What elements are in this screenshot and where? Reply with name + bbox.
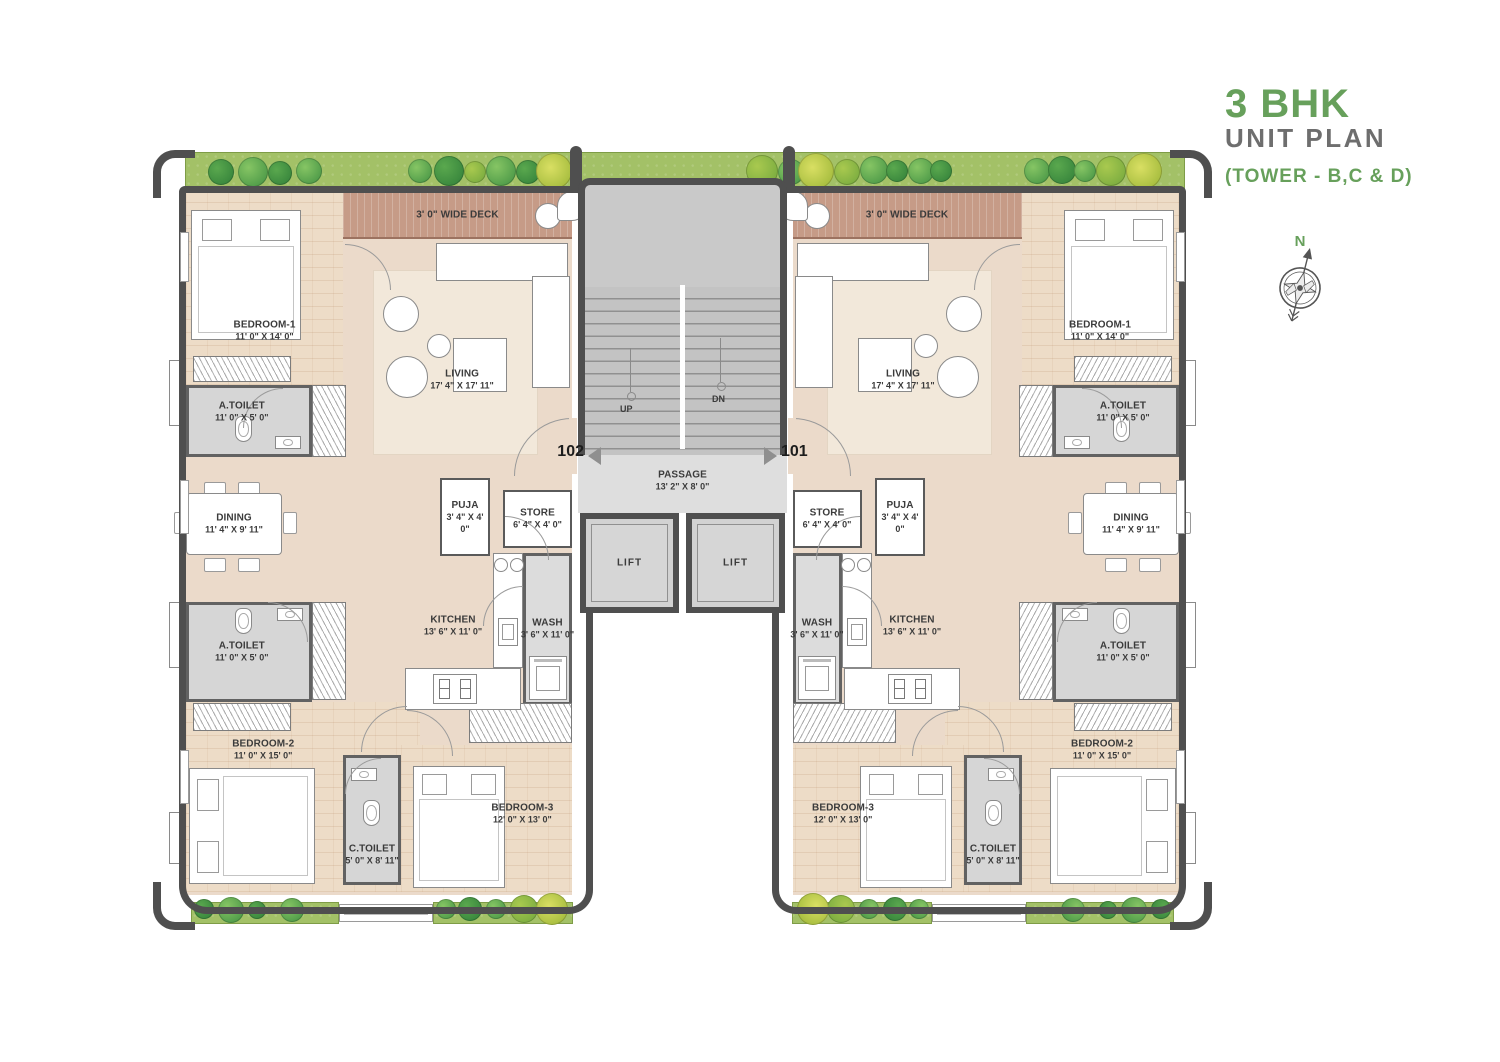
atoilet-bottom-dims: 11' 0" X 5' 0" — [215, 653, 268, 665]
lift-right: LIFT — [686, 513, 785, 613]
staircase — [578, 178, 787, 455]
stair-guide-dot — [627, 392, 636, 401]
sofa — [795, 276, 833, 388]
closet — [1019, 385, 1053, 457]
atoilet-bottom-label: A.TOILET — [1097, 640, 1150, 653]
tree-icon — [1061, 898, 1085, 922]
landscape-strip-bottom — [433, 902, 573, 924]
wash-label: WASH — [521, 617, 574, 630]
tree-icon — [486, 899, 506, 919]
store-label: STORE — [802, 507, 854, 520]
atoilet-top-dims: 11' 0" X 5' 0" — [1097, 412, 1150, 424]
ledge — [169, 360, 180, 426]
store-dims: 6' 4" X 4' 0" — [802, 520, 854, 532]
dining-chair — [1068, 512, 1082, 534]
dining-label: DINING — [205, 512, 263, 525]
closet — [1019, 602, 1053, 700]
toilet-wc — [363, 800, 380, 826]
dining-dims: 11' 4" X 9' 11" — [1102, 525, 1160, 537]
dining-chair — [204, 558, 226, 572]
kitchen-label: KITCHEN — [883, 614, 941, 627]
puja-label: PUJA — [442, 499, 488, 512]
room-dining: DINING 11' 4" X 9' 11" — [1009, 457, 1179, 602]
tree-icon — [797, 893, 829, 925]
passage-dims: 13' 2" X 8' 0" — [656, 481, 710, 493]
room-puja: PUJA 3' 4" X 4' 0" — [440, 478, 490, 556]
side-table — [427, 334, 451, 358]
room-deck: 3' 0" WIDE DECK — [343, 193, 572, 239]
tree-icon — [536, 893, 568, 925]
bedroom3-label: BEDROOM-3 — [812, 802, 874, 815]
unit-apartment: 3' 0" WIDE DECK BEDROOM-1 11' 0" X 14' 0… — [183, 150, 578, 922]
double-bed — [189, 768, 315, 884]
store-dims: 6' 4" X 4' 0" — [512, 520, 564, 532]
armchair — [946, 296, 982, 332]
dining-label: DINING — [1102, 512, 1160, 525]
ctoilet-label: C.TOILET — [966, 842, 1019, 855]
window — [180, 232, 189, 282]
bedroom3-dims: 12' 0" X 13' 0" — [491, 815, 553, 827]
washbasin — [1064, 436, 1090, 449]
closet — [312, 602, 346, 700]
tree-icon — [827, 895, 855, 923]
tree-icon — [280, 898, 304, 922]
room-deck: 3' 0" WIDE DECK — [793, 193, 1022, 239]
lift-label: LIFT — [617, 557, 642, 570]
sink-bowl — [494, 558, 508, 572]
kitchen-dims: 13' 6" X 11' 0" — [883, 627, 941, 639]
armchair — [383, 296, 419, 332]
double-bed — [1050, 768, 1176, 884]
dining-chair — [238, 558, 260, 572]
bedroom1-dims: 11' 0" X 14' 0" — [233, 332, 295, 344]
sink-bowl — [841, 558, 855, 572]
wall-stub — [783, 146, 795, 188]
compass-north-label: N — [1295, 233, 1306, 250]
atoilet-top-label: A.TOILET — [215, 399, 268, 412]
passage: PASSAGE 13' 2" X 8' 0" — [578, 455, 787, 513]
double-bed — [413, 766, 505, 888]
sink-bowl — [510, 558, 524, 572]
entry-arrow-right-icon — [764, 447, 777, 465]
wardrobe — [193, 356, 291, 382]
deck-label: 3' 0" WIDE DECK — [866, 209, 949, 222]
dining-dims: 11' 4" X 9' 11" — [205, 525, 263, 537]
wash-label: WASH — [791, 617, 844, 630]
ctoilet-label: C.TOILET — [345, 842, 398, 855]
ledge — [1185, 360, 1196, 426]
stove — [433, 674, 477, 704]
wall-corner — [153, 150, 195, 198]
washbasin — [275, 436, 301, 449]
dining-chair — [283, 512, 297, 534]
dining-chair — [1139, 558, 1161, 572]
stairs-dn-label: DN — [712, 394, 725, 404]
bedroom3-label: BEDROOM-3 — [491, 802, 553, 815]
window — [1176, 750, 1185, 804]
puja-dims: 3' 4" X 4' 0" — [877, 512, 923, 535]
ctoilet-dims: 5' 0" X 8' 11" — [966, 855, 1019, 867]
atoilet-bottom-label: A.TOILET — [215, 640, 268, 653]
bedroom1-label: BEDROOM-1 — [233, 319, 295, 332]
washing-machine — [529, 656, 567, 700]
deck-label: 3' 0" WIDE DECK — [416, 209, 499, 222]
window — [180, 750, 189, 804]
toilet-wc — [235, 608, 252, 634]
toilet-wc — [985, 800, 1002, 826]
stair-divider — [680, 285, 685, 449]
wardrobe — [1074, 703, 1172, 731]
window — [1176, 232, 1185, 282]
sink-bowl — [857, 558, 871, 572]
armchair — [937, 356, 979, 398]
bedroom2-label: BEDROOM-2 — [232, 737, 294, 750]
tree-icon — [1151, 899, 1171, 919]
tower-label: (TOWER - B,C & D) — [1225, 166, 1413, 188]
entry-arrow-left-icon — [588, 447, 601, 465]
wall-corner — [153, 882, 195, 930]
bedroom1-label: BEDROOM-1 — [1069, 319, 1131, 332]
compass-icon: N — [1262, 230, 1338, 330]
wall-corner — [1170, 882, 1212, 930]
dining-table: DINING 11' 4" X 9' 11" — [186, 493, 282, 555]
living-label: LIVING — [430, 367, 493, 380]
unit-apartment: 3' 0" WIDE DECK BEDROOM-1 11' 0" X 14' 0… — [787, 150, 1182, 922]
puja-dims: 3' 4" X 4' 0" — [442, 512, 488, 535]
living-dims: 17' 4" X 17' 11" — [430, 380, 493, 392]
passage-label: PASSAGE — [656, 468, 710, 481]
ledge — [1185, 602, 1196, 668]
page-title: 3 BHK — [1225, 84, 1413, 124]
wardrobe — [1074, 356, 1172, 382]
tree-icon — [436, 899, 456, 919]
atoilet-bottom-dims: 11' 0" X 5' 0" — [1097, 653, 1150, 665]
unit-number-101: 101 — [781, 443, 823, 461]
ledge — [169, 812, 180, 864]
kitchen-label: KITCHEN — [424, 614, 482, 627]
wash-dims: 3' 6" X 11' 0" — [521, 630, 574, 642]
bedroom2-label: BEDROOM-2 — [1071, 737, 1133, 750]
atoilet-top-label: A.TOILET — [1097, 399, 1150, 412]
unit-number-102: 102 — [542, 443, 584, 461]
dining-chair — [1105, 558, 1127, 572]
kitchen-dims: 13' 6" X 11' 0" — [424, 627, 482, 639]
store-label: STORE — [512, 507, 564, 520]
double-bed — [860, 766, 952, 888]
closet — [312, 385, 346, 457]
dining-table: DINING 11' 4" X 9' 11" — [1083, 493, 1179, 555]
bedroom3-dims: 12' 0" X 13' 0" — [812, 815, 874, 827]
stairs-up-label: UP — [620, 404, 633, 414]
room-puja: PUJA 3' 4" X 4' 0" — [875, 478, 925, 556]
armchair — [386, 356, 428, 398]
window — [180, 480, 189, 534]
stair-guide-line — [630, 348, 631, 392]
ledge — [1185, 812, 1196, 864]
bedroom2-dims: 11' 0" X 15' 0" — [1071, 750, 1133, 762]
tree-icon — [458, 897, 482, 921]
tree-icon — [1121, 897, 1147, 923]
ctoilet-dims: 5' 0" X 8' 11" — [345, 855, 398, 867]
stove — [888, 674, 932, 704]
living-dims: 17' 4" X 17' 11" — [871, 380, 934, 392]
tree-icon — [883, 897, 907, 921]
window — [1176, 480, 1185, 534]
ledge — [169, 602, 180, 668]
wash-dims: 3' 6" X 11' 0" — [791, 630, 844, 642]
stair-guide-dot — [717, 382, 726, 391]
landscape-strip-bottom — [191, 902, 339, 924]
tree-icon — [218, 897, 244, 923]
wardrobe — [193, 703, 291, 731]
atoilet-top-dims: 11' 0" X 5' 0" — [215, 412, 268, 424]
living-label: LIVING — [871, 367, 934, 380]
bedroom1-dims: 11' 0" X 14' 0" — [1069, 332, 1131, 344]
lift-left: LIFT — [580, 513, 679, 613]
page-subtitle: UNIT PLAN — [1225, 124, 1413, 154]
landscape-strip-bottom — [1026, 902, 1174, 924]
landscape-strip-bottom — [792, 902, 932, 924]
side-table — [914, 334, 938, 358]
washing-machine — [798, 656, 836, 700]
lift-label: LIFT — [723, 557, 748, 570]
entry-ledge — [339, 904, 433, 922]
tree-icon — [909, 899, 929, 919]
stair-guide-line — [720, 338, 721, 382]
tree-icon — [859, 899, 879, 919]
tree-icon — [510, 895, 538, 923]
toilet-wc — [1113, 608, 1130, 634]
bedroom2-dims: 11' 0" X 15' 0" — [232, 750, 294, 762]
tree-icon — [1099, 901, 1117, 919]
entry-ledge — [932, 904, 1026, 922]
title-block: 3 BHK UNIT PLAN (TOWER - B,C & D) — [1225, 84, 1413, 188]
wall-corner — [1170, 150, 1212, 198]
tree-icon — [248, 901, 266, 919]
room-dining: DINING 11' 4" X 9' 11" — [186, 457, 356, 602]
floor-plan: 3' 0" WIDE DECK BEDROOM-1 11' 0" X 14' 0… — [0, 0, 1500, 1062]
puja-label: PUJA — [877, 499, 923, 512]
tree-icon — [194, 899, 214, 919]
sofa — [532, 276, 570, 388]
